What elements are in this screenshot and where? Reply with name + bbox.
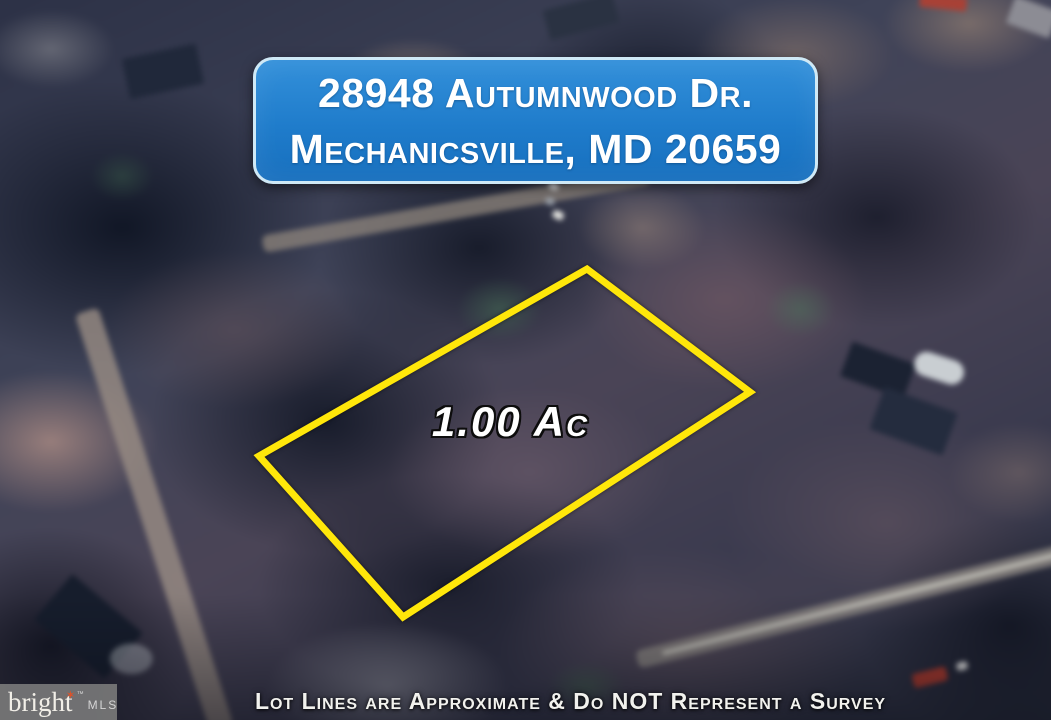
address-banner: 28948 Autumnwood Dr. Mechanicsville, MD … [253, 57, 818, 184]
disclaimer-text: Lot Lines are Approximate & Do NOT Repre… [0, 688, 1051, 715]
lot-area-label: 1.00 Ac [398, 398, 623, 446]
listing-photo: 1.00 Ac 28948 Autumnwood Dr. Mechanicsvi… [0, 0, 1051, 720]
address-line1: 28948 Autumnwood Dr. [318, 65, 753, 121]
address-line2: Mechanicsville, MD 20659 [290, 121, 782, 177]
